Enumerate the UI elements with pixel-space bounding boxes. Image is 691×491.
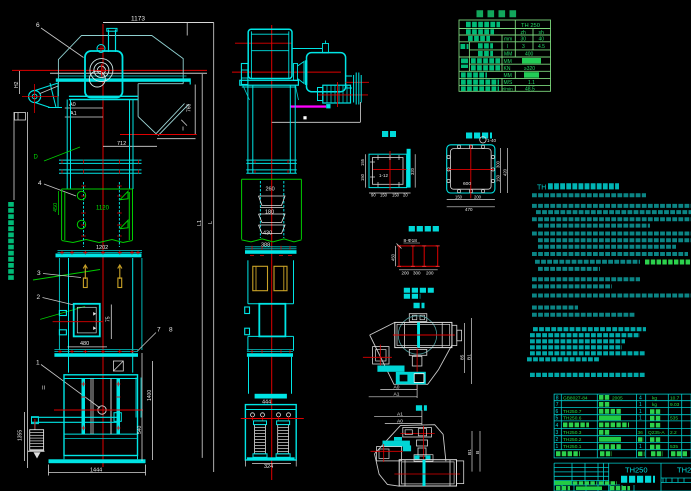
svg-text:2.2: 2.2 xyxy=(670,430,677,436)
svg-text:1173: 1173 xyxy=(131,16,145,23)
svg-text:B1: B1 xyxy=(467,449,473,455)
svg-text:540: 540 xyxy=(137,425,143,434)
svg-text:1: 1 xyxy=(639,402,642,408)
svg-text:150: 150 xyxy=(496,174,501,182)
svg-text:155: 155 xyxy=(360,158,365,166)
svg-text:1: 1 xyxy=(639,416,642,422)
svg-text:1-40: 1-40 xyxy=(487,138,497,143)
svg-text:KN: KN xyxy=(504,66,511,72)
svg-text:MM: MM xyxy=(504,73,512,79)
svg-text:2005: 2005 xyxy=(612,395,623,401)
svg-text:600: 600 xyxy=(463,181,471,187)
svg-text:sh: sh xyxy=(539,30,545,36)
svg-text:7: 7 xyxy=(556,402,559,408)
svg-text:≥320: ≥320 xyxy=(524,66,535,72)
svg-text:D: D xyxy=(34,155,39,161)
svg-text:766: 766 xyxy=(187,103,193,112)
svg-text:3: 3 xyxy=(522,44,525,50)
svg-text:7: 7 xyxy=(157,327,161,334)
svg-text:300: 300 xyxy=(496,160,501,168)
svg-text:r/min: r/min xyxy=(503,86,514,91)
svg-text:85: 85 xyxy=(460,354,466,360)
svg-text:kg: kg xyxy=(652,395,657,401)
svg-text:1444: 1444 xyxy=(90,467,102,473)
svg-text:1: 1 xyxy=(639,409,642,415)
svg-text:TH250.3: TH250.3 xyxy=(563,430,582,436)
svg-text:30: 30 xyxy=(521,37,527,43)
svg-text:kg: kg xyxy=(652,402,657,408)
svg-text:TH: TH xyxy=(537,185,546,192)
svg-text:3: 3 xyxy=(37,270,41,277)
svg-text:TH250.1: TH250.1 xyxy=(563,444,582,450)
svg-text:zh: zh xyxy=(521,30,527,36)
svg-text:II: II xyxy=(42,386,46,392)
svg-text:36: 36 xyxy=(638,430,644,436)
svg-text:1.1: 1.1 xyxy=(528,80,535,86)
svg-text:90: 90 xyxy=(371,193,376,198)
svg-text:150: 150 xyxy=(392,193,400,198)
svg-text:200: 200 xyxy=(474,195,482,200)
svg-text:260: 260 xyxy=(266,187,275,193)
svg-text:400: 400 xyxy=(525,52,534,58)
svg-text:3: 3 xyxy=(556,430,559,436)
svg-text:10.7: 10.7 xyxy=(670,395,680,401)
svg-text:mm: mm xyxy=(504,37,512,43)
svg-text:A0: A0 xyxy=(394,384,400,390)
svg-text:TH250.2: TH250.2 xyxy=(563,437,582,443)
svg-text:TH250.7: TH250.7 xyxy=(563,409,582,415)
svg-text:40: 40 xyxy=(539,37,545,43)
svg-text:6: 6 xyxy=(556,409,559,415)
svg-text:GB8027-84: GB8027-84 xyxy=(563,395,588,401)
svg-text:20: 20 xyxy=(403,193,408,198)
svg-text:1400: 1400 xyxy=(147,390,153,401)
svg-text:1355: 1355 xyxy=(18,430,24,441)
svg-text:470: 470 xyxy=(465,207,473,212)
svg-text:TH2: TH2 xyxy=(677,466,691,475)
svg-text:480: 480 xyxy=(80,341,89,347)
svg-text:535: 535 xyxy=(670,444,678,450)
svg-text:TH250.6: TH250.6 xyxy=(563,416,582,422)
svg-text:1-12: 1-12 xyxy=(379,173,389,178)
svg-text:4.5: 4.5 xyxy=(538,44,545,50)
svg-text:4: 4 xyxy=(38,180,42,187)
svg-text:450: 450 xyxy=(53,203,59,212)
svg-text:150: 150 xyxy=(360,173,365,181)
svg-text:2: 2 xyxy=(556,437,559,443)
svg-text:1: 1 xyxy=(639,444,642,450)
svg-text:L1: L1 xyxy=(197,220,203,226)
svg-text:8: 8 xyxy=(169,327,173,334)
svg-text:150: 150 xyxy=(380,193,388,198)
svg-text:B1: B1 xyxy=(467,354,473,360)
svg-text:TH 250: TH 250 xyxy=(521,23,540,29)
svg-text:MM: MM xyxy=(504,59,512,65)
svg-text:2: 2 xyxy=(37,294,41,301)
svg-text:A1: A1 xyxy=(70,111,77,117)
svg-text:MM: MM xyxy=(504,52,512,58)
svg-text:1: 1 xyxy=(556,444,559,450)
svg-text:320: 320 xyxy=(410,167,415,175)
svg-text:9.03: 9.03 xyxy=(670,402,680,408)
svg-text:l: l xyxy=(507,44,508,50)
svg-text:48.5: 48.5 xyxy=(525,86,535,92)
svg-text:L: L xyxy=(208,221,214,224)
svg-text:420: 420 xyxy=(503,168,508,176)
svg-text:TH250: TH250 xyxy=(625,466,648,475)
svg-text:5: 5 xyxy=(556,416,559,422)
svg-text:200: 200 xyxy=(402,271,410,276)
svg-text:8: 8 xyxy=(556,395,559,401)
svg-text:6: 6 xyxy=(36,22,40,29)
svg-text:150: 150 xyxy=(455,195,463,200)
svg-text:4: 4 xyxy=(556,423,559,429)
svg-text:1120: 1120 xyxy=(96,206,110,212)
svg-text:324: 324 xyxy=(264,464,273,470)
svg-text:300: 300 xyxy=(413,271,421,276)
svg-text:535: 535 xyxy=(670,416,678,422)
svg-text:430: 430 xyxy=(263,231,272,237)
svg-text:180: 180 xyxy=(265,210,274,216)
svg-text:B: B xyxy=(475,451,481,454)
svg-text:450: 450 xyxy=(391,253,396,261)
svg-text:M/S: M/S xyxy=(504,80,514,86)
svg-text:4: 4 xyxy=(639,395,642,401)
svg-text:200: 200 xyxy=(426,271,434,276)
svg-text:A1: A1 xyxy=(394,392,400,398)
svg-text:1: 1 xyxy=(36,360,40,367)
svg-text:Q235-A: Q235-A xyxy=(648,430,665,436)
svg-text:H2: H2 xyxy=(14,81,20,88)
svg-text:75: 75 xyxy=(106,316,112,322)
